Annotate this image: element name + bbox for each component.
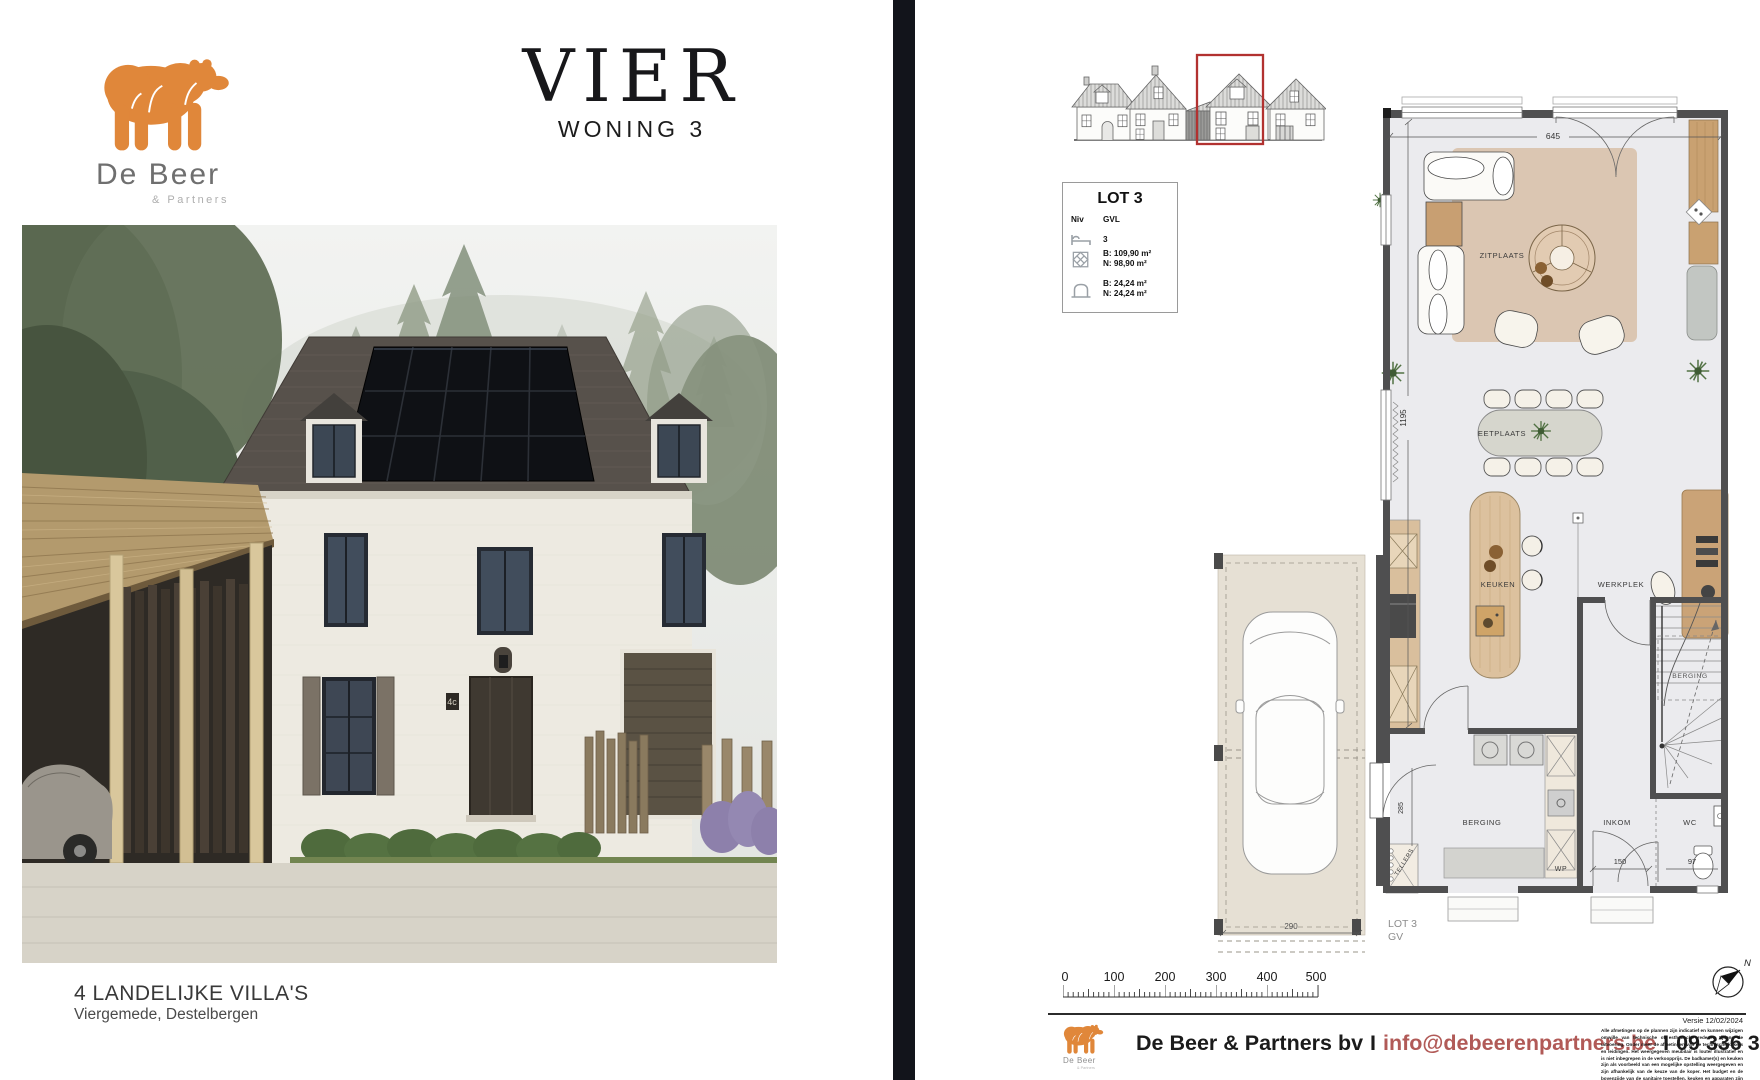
plan-level-label: GV: [1388, 931, 1403, 943]
scale-tick-300: 300: [1206, 970, 1227, 984]
fineprint-block: Versie 12/02/2024 Alle afmetingen op de …: [1601, 1016, 1743, 1080]
lot-title: LOT 3: [1063, 190, 1177, 208]
lot-annotation: LOT 3 GV: [1388, 918, 1417, 943]
label-keuken: KEUKEN: [1481, 580, 1515, 589]
label-inkom: INKOM: [1603, 818, 1631, 827]
area-bruto: B: 109,90 m²: [1103, 249, 1151, 258]
terrace-bruto: B: 24,24 m²: [1103, 279, 1147, 288]
label-eetplaats: EETPLAATS: [1478, 429, 1526, 438]
version-label: Versie 12/02/2024: [1601, 1016, 1743, 1025]
col-niv: Niv: [1071, 215, 1084, 224]
scale-tick-100: 100: [1104, 970, 1125, 984]
footer-logo-wordmark: De Beer: [1063, 1056, 1096, 1065]
floorplan-drawing: ZITPLAATS EETPLAATS KEUKEN WERKPLEK BERG…: [1180, 85, 1760, 960]
brochure-page: De Beer & Partners VIER WONING 3: [0, 0, 1760, 1080]
compass-north-label: N: [1744, 958, 1751, 969]
plan-lot-label: LOT 3: [1388, 918, 1417, 930]
label-wc: WC: [1683, 818, 1697, 827]
label-berging-stairs: BERGING: [1672, 673, 1708, 680]
dryer: [1510, 735, 1543, 765]
scale-tick-200: 200: [1155, 970, 1176, 984]
scale-tick-500: 500: [1306, 970, 1327, 984]
dim-carport-width: 290: [1284, 922, 1298, 931]
tiles-icon: [1070, 251, 1092, 269]
dim-door-left: 285: [1398, 802, 1405, 814]
dim-top-width: 645: [1546, 131, 1560, 141]
shuttered-window: [303, 677, 394, 795]
driveway: [22, 863, 777, 963]
area-netto: N: 98,90 m²: [1103, 259, 1147, 268]
dim-inkom-width: 150: [1614, 857, 1627, 866]
compass-icon: N: [1698, 950, 1760, 1008]
footer-divider: [1048, 1013, 1746, 1015]
footer-logo-subtitle: & Partners: [1077, 1066, 1095, 1070]
project-title-block: VIER WONING 3: [492, 40, 772, 143]
label-zitplaats: ZITPLAATS: [1480, 251, 1525, 260]
washer: [1474, 735, 1507, 765]
logo-wordmark: De Beer: [96, 158, 220, 192]
caption-title: 4 LANDELIJKE VILLA'S: [74, 982, 309, 1006]
side-table: [1426, 202, 1462, 246]
page-divider-bar: [893, 0, 915, 1080]
bench: [1687, 266, 1717, 340]
scale-tick-0: 0: [1062, 970, 1069, 984]
dim-wc-width: 97: [1688, 857, 1696, 866]
arch-icon: [1070, 281, 1092, 299]
scale-bar: 0 100 200 300 400 500: [1050, 966, 1330, 1002]
house-number: 4c: [447, 697, 457, 707]
house-render-photo: 4c: [22, 225, 777, 963]
label-wp: WP: [1555, 866, 1567, 873]
scale-tick-400: 400: [1257, 970, 1278, 984]
caption-subtitle: Viergemede, Destelbergen: [74, 1006, 258, 1024]
bedroom-count: 3: [1103, 235, 1108, 244]
project-title: VIER: [492, 40, 772, 112]
sideboard: [1686, 120, 1718, 340]
col-gvl: GVL: [1103, 215, 1120, 224]
label-berging: BERGING: [1463, 818, 1502, 827]
footer-separator: I: [1370, 1031, 1376, 1055]
legal-disclaimer: Alle afmetingen op de plannen zijn indic…: [1601, 1028, 1743, 1080]
carport: [1214, 553, 1365, 952]
unit-subtitle: WONING 3: [492, 116, 772, 143]
debeer-bear-logo-icon: [92, 44, 244, 158]
terrace-netto: N: 24,24 m²: [1103, 289, 1147, 298]
tall-cabinet: [1545, 733, 1577, 878]
solar-panels: [340, 347, 594, 481]
bed-icon: [1070, 231, 1092, 249]
lot-info-box: LOT 3 Niv GVL 3 B: 109,90 m² N: 98,90 m²…: [1062, 182, 1178, 313]
car-topview: [1236, 612, 1344, 874]
footer-company: De Beer & Partners bv: [1136, 1031, 1363, 1055]
thatched-carport: [22, 473, 274, 868]
dim-left-height: 1195: [1399, 409, 1408, 427]
logo-subtitle: & Partners: [152, 194, 229, 206]
kitchen-counter: [1386, 520, 1420, 730]
coffee-table: [1529, 225, 1595, 291]
label-werkplek: WERKPLEK: [1598, 580, 1644, 589]
footer-bear-logo-icon: [1060, 1020, 1108, 1056]
